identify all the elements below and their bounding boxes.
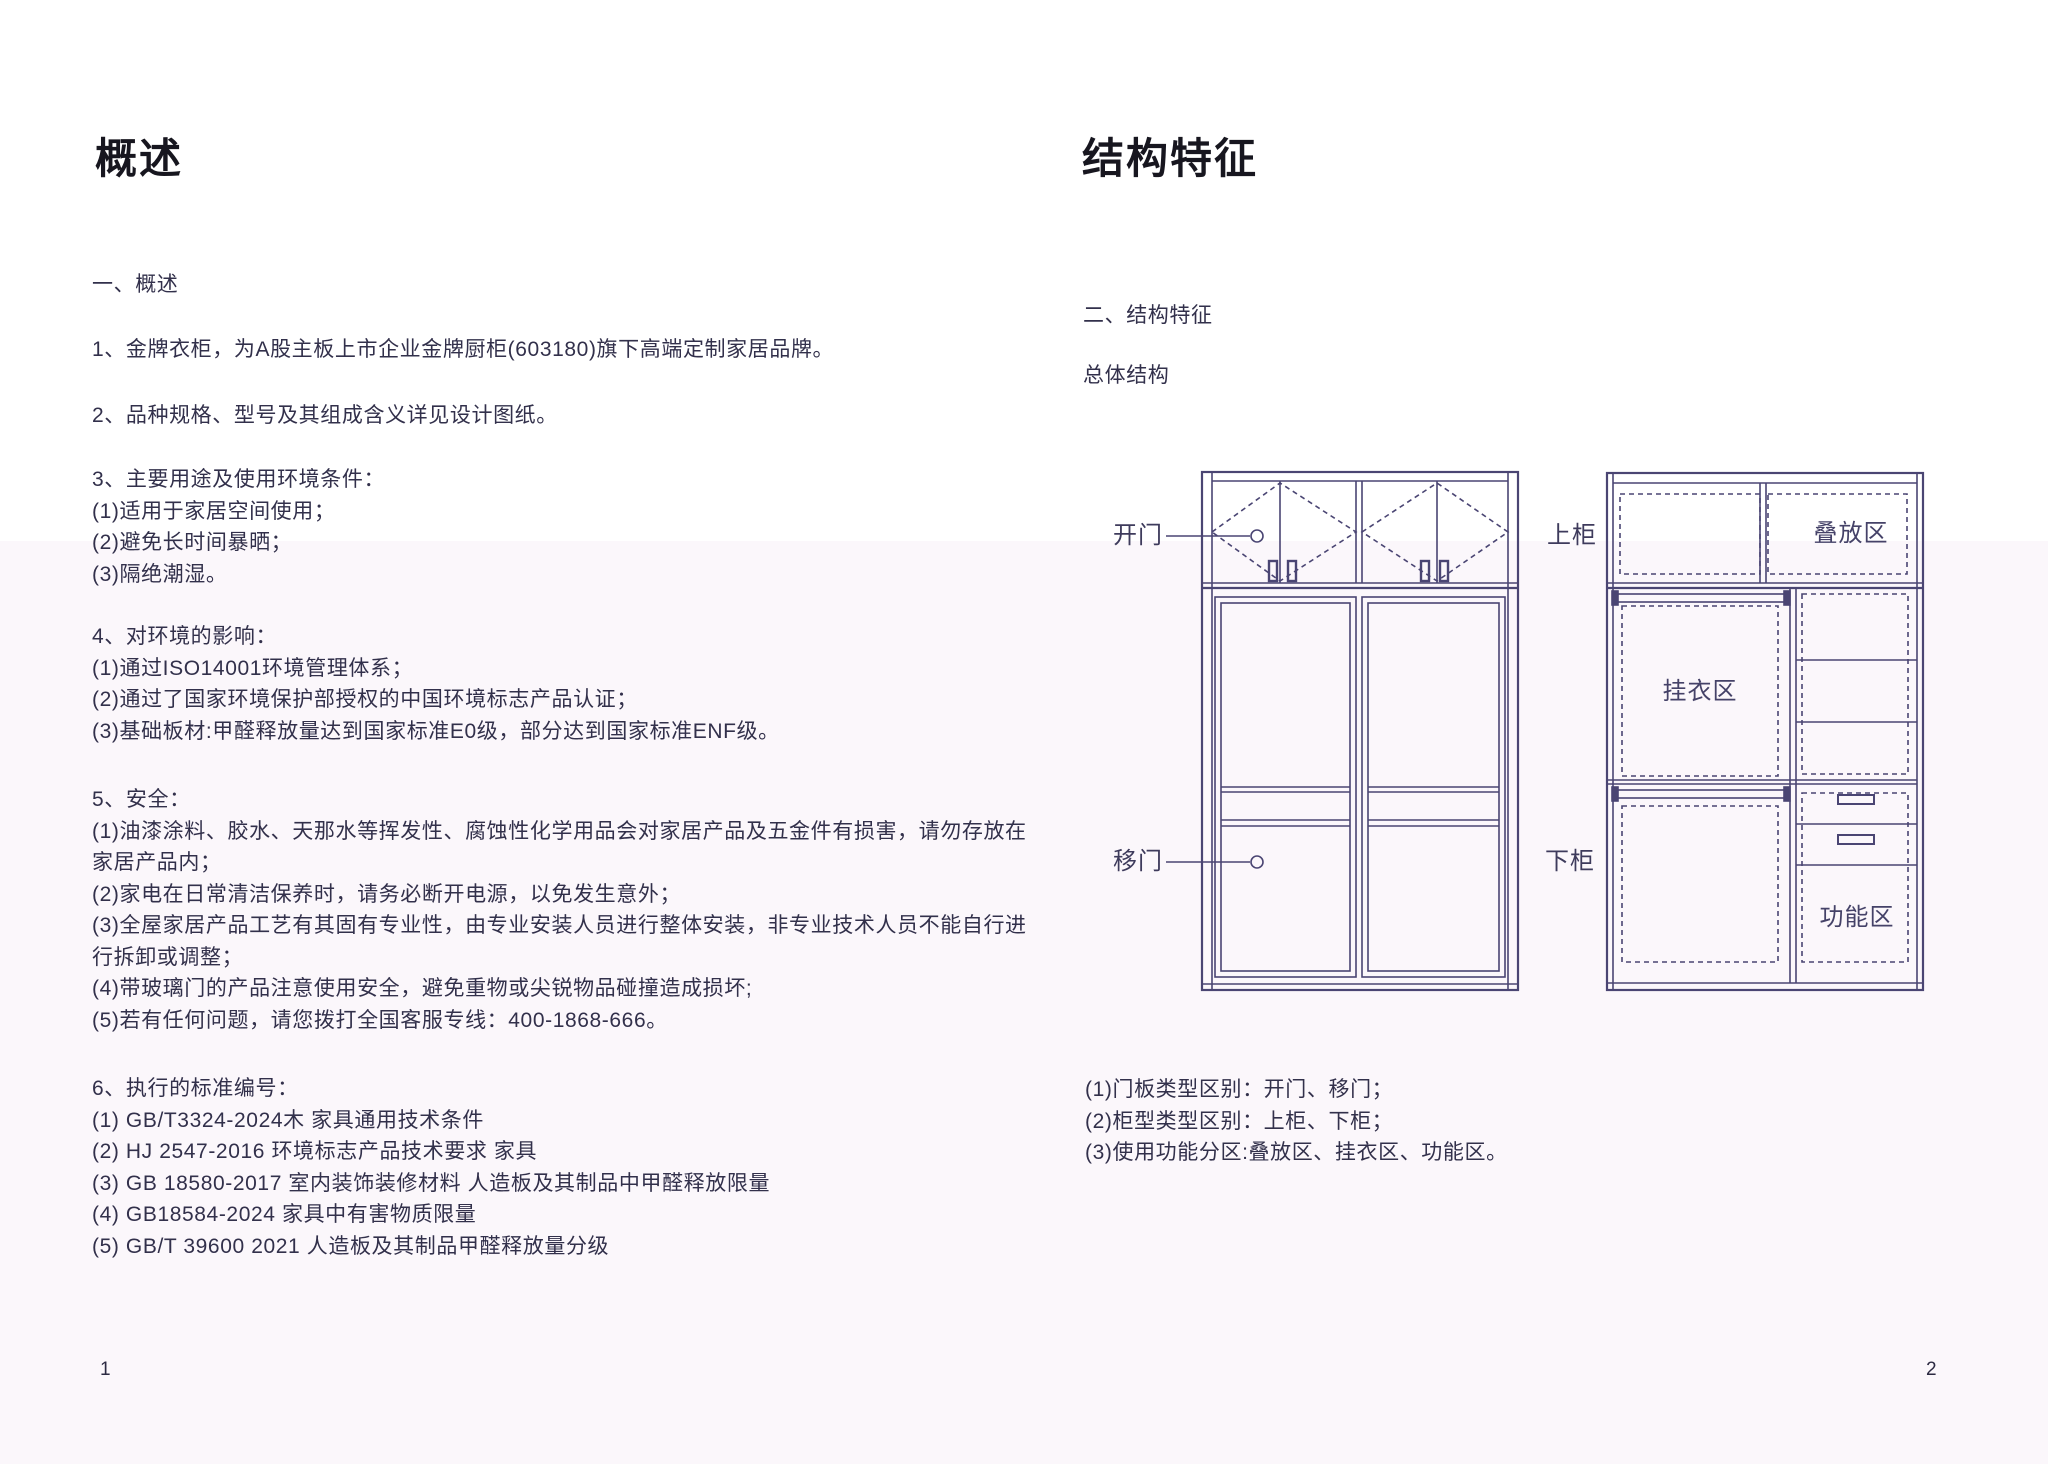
hanging-rod-top: [1612, 591, 1790, 605]
door-handles: [1269, 561, 1448, 581]
function-zone-outline: [1802, 793, 1908, 962]
open-door-label: 开门: [1113, 524, 1163, 548]
door-type-diagram: [1166, 472, 1518, 990]
sliding-door-marker: [1251, 856, 1263, 868]
hanging-zone-label: 挂衣区: [1663, 680, 1738, 704]
drawer-handle: [1838, 835, 1874, 844]
lower-cabinet-label: 下柜: [1545, 850, 1595, 874]
open-door-marker: [1251, 530, 1263, 542]
manual-spread: 概述 结构特征 一、概述 1、金牌衣柜，为A股主板上市企业金牌厨柜(603180…: [0, 0, 2048, 1464]
stacking-zone-label: 叠放区: [1814, 522, 1889, 546]
door-swing-mark: [1362, 483, 1508, 581]
function-zone-label: 功能区: [1820, 906, 1895, 930]
hanging-rod-bottom: [1612, 787, 1790, 801]
wardrobe-diagrams: [0, 0, 2048, 1464]
drawer-handle: [1838, 795, 1874, 804]
upper-cabinet-label: 上柜: [1547, 524, 1597, 548]
door-swing-mark: [1212, 483, 1356, 581]
sliding-door-label: 移门: [1113, 850, 1163, 874]
